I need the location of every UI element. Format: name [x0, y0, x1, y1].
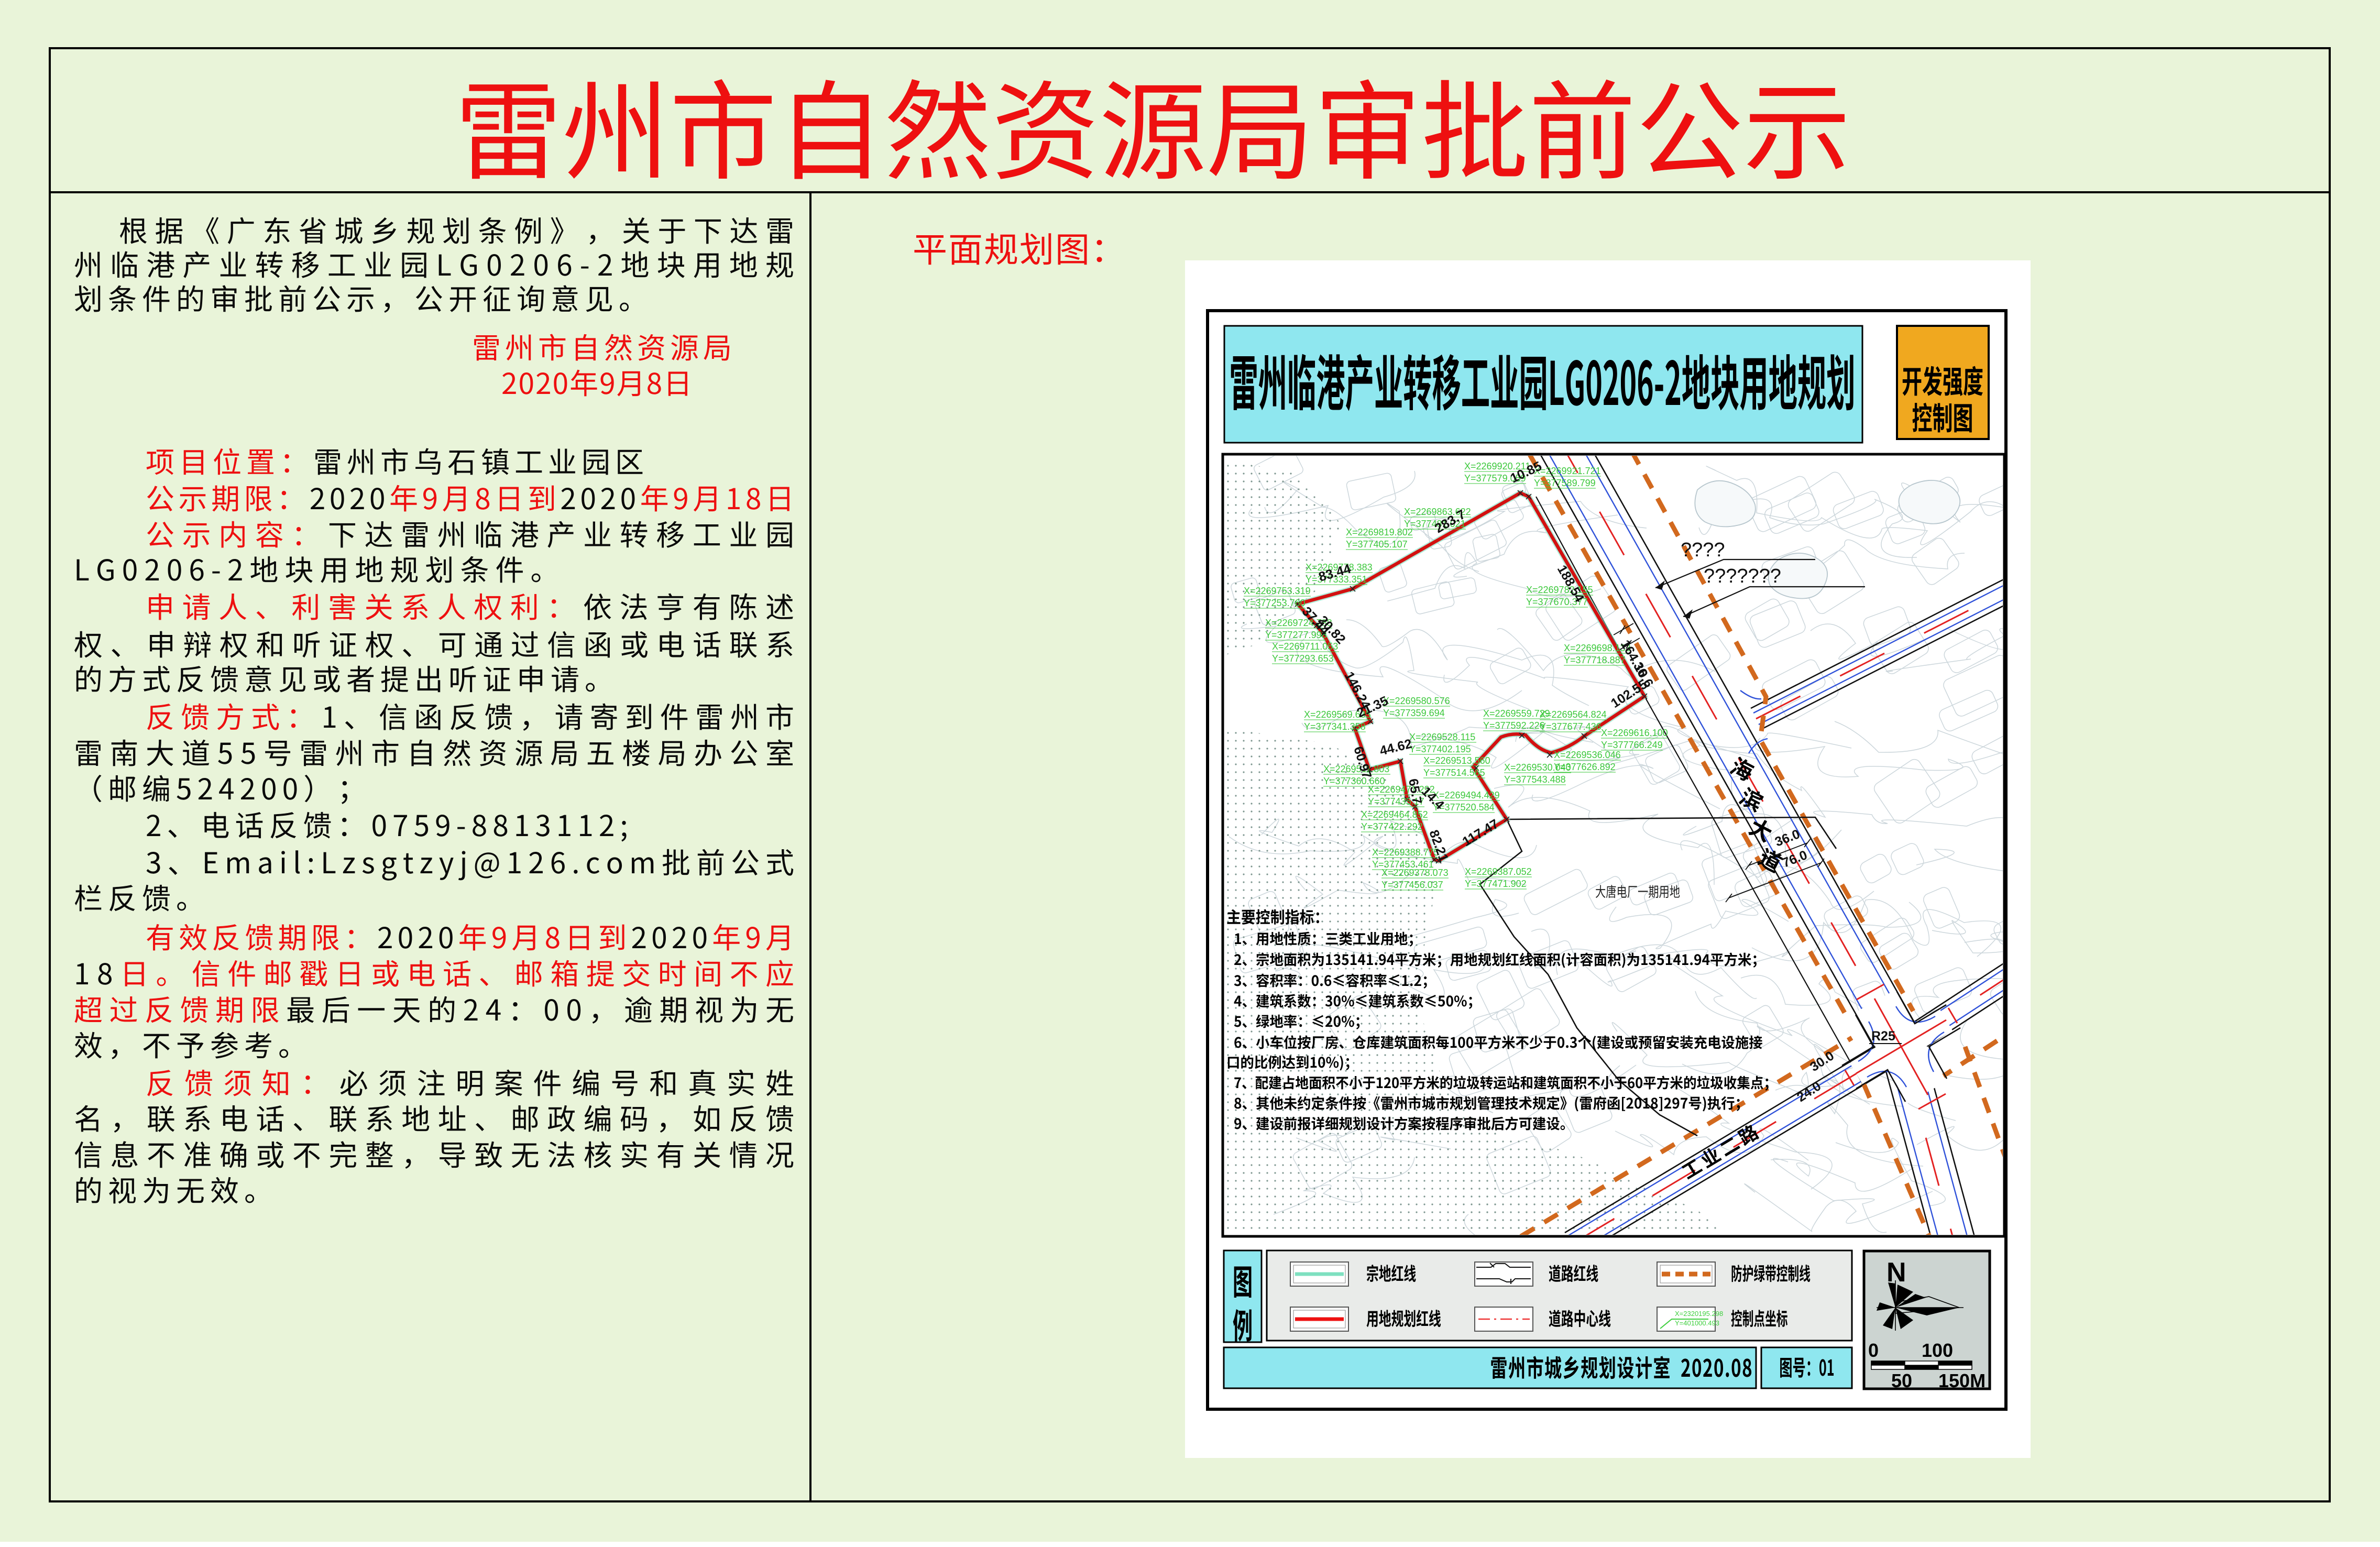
svg-text:Y=377402.195: Y=377402.195 [1409, 744, 1471, 754]
svg-text:X=2269536.046: X=2269536.046 [1554, 750, 1621, 760]
svg-text:Y=377718.887: Y=377718.887 [1564, 655, 1626, 665]
svg-text:Y=377766.249: Y=377766.249 [1601, 740, 1663, 750]
svg-text:Y=401000.493: Y=401000.493 [1675, 1319, 1719, 1327]
svg-text:Y=377543.488: Y=377543.488 [1504, 774, 1566, 785]
svg-text:X=2269580.576: X=2269580.576 [1383, 696, 1450, 706]
svg-text:50: 50 [1891, 1370, 1912, 1391]
svg-text:Y=377405.107: Y=377405.107 [1346, 539, 1408, 550]
svg-text:Y=377422.292: Y=377422.292 [1361, 821, 1423, 832]
svg-text:X=2269530.040: X=2269530.040 [1504, 762, 1571, 773]
svg-text:X=2269464.852: X=2269464.852 [1361, 809, 1428, 820]
svg-text:Y=377592.226: Y=377592.226 [1483, 720, 1545, 731]
svg-text:X=2269753.319: X=2269753.319 [1244, 586, 1311, 596]
svg-text:Y=377253.760: Y=377253.760 [1244, 598, 1306, 608]
svg-text:Y=377341.358: Y=377341.358 [1304, 721, 1366, 732]
svg-text:Y=377471.902: Y=377471.902 [1465, 879, 1527, 889]
svg-text:X=2269528.115: X=2269528.115 [1409, 732, 1475, 742]
svg-text:Y=377589.799: Y=377589.799 [1534, 478, 1596, 488]
svg-text:X=2269388.775: X=2269388.775 [1372, 847, 1439, 858]
svg-text:X=2269387.052: X=2269387.052 [1465, 866, 1532, 877]
svg-text:X=2269513.560: X=2269513.560 [1423, 755, 1490, 766]
svg-text:X=2269564.824: X=2269564.824 [1540, 709, 1607, 720]
svg-text:100: 100 [1922, 1340, 1953, 1361]
svg-text:X=2269616.100: X=2269616.100 [1601, 728, 1668, 738]
svg-text:Y=377359.694: Y=377359.694 [1383, 708, 1445, 718]
svg-text:X=2269921.721: X=2269921.721 [1534, 466, 1601, 476]
svg-text:X=2320195.298: X=2320195.298 [1675, 1310, 1723, 1318]
svg-text:????: ???? [1681, 539, 1725, 561]
svg-text:Y=377456.037: Y=377456.037 [1381, 880, 1443, 890]
svg-text:Y=377514.565: Y=377514.565 [1423, 767, 1485, 778]
svg-text:R25: R25 [1871, 1029, 1895, 1044]
svg-text:???????: ??????? [1704, 565, 1781, 587]
svg-text:Y=377677.436: Y=377677.436 [1540, 721, 1602, 732]
svg-text:X=2269819.802: X=2269819.802 [1346, 527, 1413, 537]
svg-text:0: 0 [1868, 1340, 1879, 1361]
svg-text:Y=377293.653: Y=377293.653 [1272, 653, 1334, 664]
svg-text:X=2269378.073: X=2269378.073 [1381, 868, 1449, 878]
svg-text:150M: 150M [1938, 1370, 1986, 1391]
svg-text:X=2269711.053: X=2269711.053 [1272, 641, 1338, 652]
